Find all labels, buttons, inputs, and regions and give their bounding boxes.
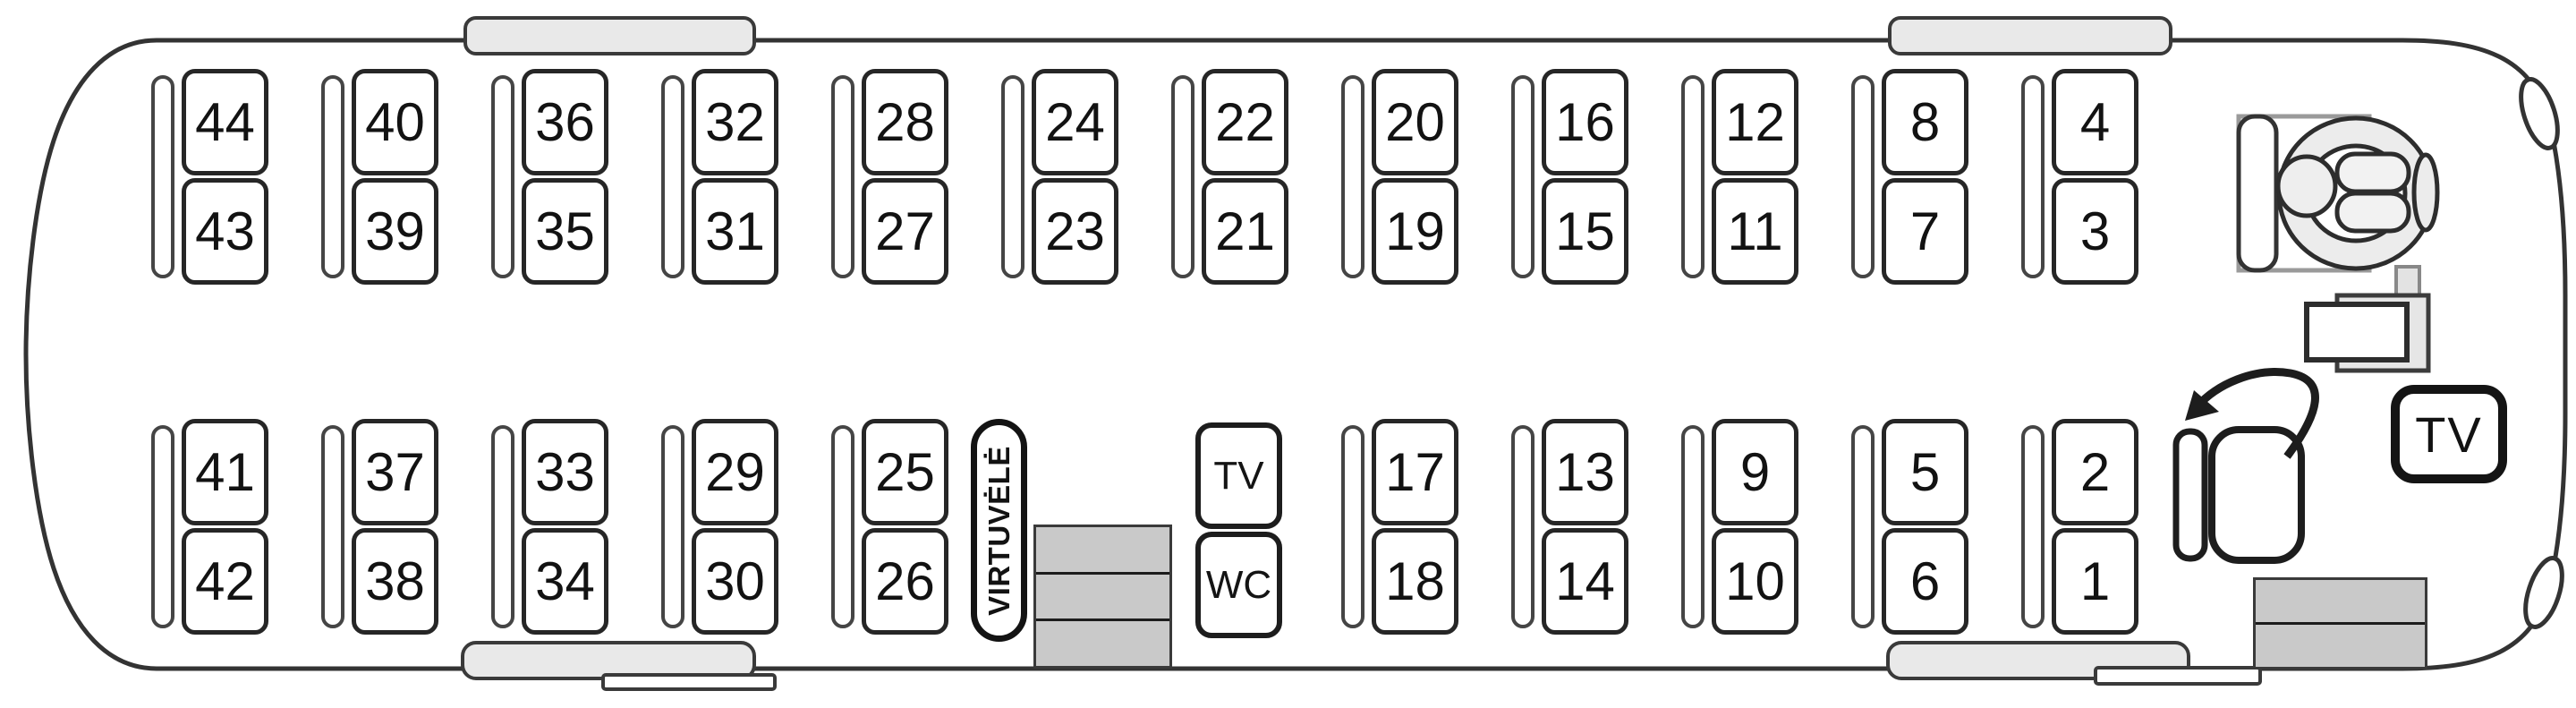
wc-room: WC: [1195, 532, 1282, 638]
seat-9[interactable]: 9: [1712, 419, 1798, 525]
driver-head-icon: [2278, 157, 2335, 216]
seat-pair-20-19: 2019: [1341, 69, 1458, 285]
seat-3[interactable]: 3: [2052, 178, 2138, 285]
middle-door-step: [601, 673, 777, 691]
roof-hatch-front: [1888, 16, 2172, 55]
seat-1[interactable]: 1: [2052, 528, 2138, 635]
seat-pair-4-3: 43: [2021, 69, 2138, 285]
seat-backrest-icon: [491, 425, 514, 628]
seat-2[interactable]: 2: [2052, 419, 2138, 525]
kitchenette: VIRTUVĖLĖ: [971, 419, 1027, 642]
stair-step: [2256, 622, 2425, 667]
seat-pair-25-26: 2526: [831, 419, 948, 635]
bus-floor-plan: VIRTUVĖLĖ TV WC TV 444340393635323128272…: [0, 0, 2576, 708]
seat-43[interactable]: 43: [182, 178, 268, 285]
seat-backrest-icon: [1341, 75, 1365, 278]
seat-backrest-icon: [661, 75, 684, 278]
seat-backrest-icon: [1681, 75, 1705, 278]
stair-step: [2256, 580, 2425, 622]
seat-11[interactable]: 11: [1712, 178, 1798, 285]
seat-32[interactable]: 32: [692, 69, 778, 175]
seat-backrest-icon: [1341, 425, 1365, 628]
kitchenette-label: VIRTUVĖLĖ: [982, 446, 1016, 616]
seat-10[interactable]: 10: [1712, 528, 1798, 635]
seat-pair-28-27: 2827: [831, 69, 948, 285]
seat-pair-37-38: 3738: [321, 419, 438, 635]
seat-pair-41-42: 4142: [151, 419, 268, 635]
seat-pair-9-10: 910: [1681, 419, 1798, 635]
seat-7[interactable]: 7: [1882, 178, 1968, 285]
seat-21[interactable]: 21: [1202, 178, 1288, 285]
seat-36[interactable]: 36: [522, 69, 608, 175]
seat-pair-24-23: 2423: [1001, 69, 1118, 285]
seat-pair-36-35: 3635: [491, 69, 608, 285]
stair-step: [1036, 618, 1169, 666]
seat-29[interactable]: 29: [692, 419, 778, 525]
seat-30[interactable]: 30: [692, 528, 778, 635]
seat-backrest-icon: [831, 75, 854, 278]
seat-25[interactable]: 25: [862, 419, 948, 525]
seat-35[interactable]: 35: [522, 178, 608, 285]
seat-39[interactable]: 39: [352, 178, 438, 285]
seat-44[interactable]: 44: [182, 69, 268, 175]
seat-42[interactable]: 42: [182, 528, 268, 635]
seat-backrest-icon: [1511, 75, 1535, 278]
seat-8[interactable]: 8: [1882, 69, 1968, 175]
seat-pair-12-11: 1211: [1681, 69, 1798, 285]
seat-pair-40-39: 4039: [321, 69, 438, 285]
seat-backrest-icon: [321, 425, 344, 628]
seat-pair-5-6: 56: [1851, 419, 1968, 635]
seat-6[interactable]: 6: [1882, 528, 1968, 635]
seat-pair-32-31: 3231: [661, 69, 778, 285]
seat-34[interactable]: 34: [522, 528, 608, 635]
seat-pair-33-34: 3334: [491, 419, 608, 635]
seat-17[interactable]: 17: [1372, 419, 1458, 525]
seat-backrest-icon: [1851, 75, 1875, 278]
seat-backrest-icon: [831, 425, 854, 628]
rotating-guide-seat-icon: [2176, 430, 2301, 560]
tv-room: TV: [1195, 422, 1282, 529]
seat-backrest-icon: [2021, 425, 2045, 628]
seat-40[interactable]: 40: [352, 69, 438, 175]
steering-wheel-icon: [2278, 118, 2437, 269]
stair-step: [1036, 572, 1169, 619]
front-tv-label: TV: [2415, 405, 2483, 464]
seat-pair-44-43: 4443: [151, 69, 268, 285]
seat-22[interactable]: 22: [1202, 69, 1288, 175]
seat-38[interactable]: 38: [352, 528, 438, 635]
seat-26[interactable]: 26: [862, 528, 948, 635]
seat-pair-17-18: 1718: [1341, 419, 1458, 635]
seat-19[interactable]: 19: [1372, 178, 1458, 285]
seat-pair-2-1: 21: [2021, 419, 2138, 635]
seat-14[interactable]: 14: [1542, 528, 1628, 635]
seat-backrest-icon: [1681, 425, 1705, 628]
seat-5[interactable]: 5: [1882, 419, 1968, 525]
seat-backrest-icon: [321, 75, 344, 278]
tv-room-label: TV: [1213, 454, 1263, 499]
roof-hatch-rear: [463, 16, 756, 55]
front-door-step: [2094, 666, 2262, 686]
seat-15[interactable]: 15: [1542, 178, 1628, 285]
seat-37[interactable]: 37: [352, 419, 438, 525]
middle-stairs: [1033, 525, 1172, 669]
seat-pair-22-21: 2221: [1171, 69, 1288, 285]
seat-4[interactable]: 4: [2052, 69, 2138, 175]
seat-backrest-icon: [1001, 75, 1024, 278]
seat-backrest-icon: [661, 425, 684, 628]
seat-backrest-icon: [491, 75, 514, 278]
seat-pair-8-7: 87: [1851, 69, 1968, 285]
seat-33[interactable]: 33: [522, 419, 608, 525]
front-stairs: [2253, 577, 2427, 670]
seat-backrest-icon: [1851, 425, 1875, 628]
seat-pair-16-15: 1615: [1511, 69, 1628, 285]
seat-31[interactable]: 31: [692, 178, 778, 285]
wc-room-label: WC: [1206, 563, 1271, 608]
seat-27[interactable]: 27: [862, 178, 948, 285]
seat-12[interactable]: 12: [1712, 69, 1798, 175]
seat-41[interactable]: 41: [182, 419, 268, 525]
seat-23[interactable]: 23: [1032, 178, 1118, 285]
seat-20[interactable]: 20: [1372, 69, 1458, 175]
seat-16[interactable]: 16: [1542, 69, 1628, 175]
seat-pair-13-14: 1314: [1511, 419, 1628, 635]
seat-13[interactable]: 13: [1542, 419, 1628, 525]
seat-pair-29-30: 2930: [661, 419, 778, 635]
seat-backrest-icon: [151, 425, 174, 628]
stair-step: [1036, 527, 1169, 572]
seat-backrest-icon: [2021, 75, 2045, 278]
seat-backrest-icon: [1511, 425, 1535, 628]
seat-18[interactable]: 18: [1372, 528, 1458, 635]
seat-backrest-icon: [151, 75, 174, 278]
seat-28[interactable]: 28: [862, 69, 948, 175]
seat-backrest-icon: [1171, 75, 1194, 278]
front-tv: TV: [2391, 385, 2507, 483]
seat-24[interactable]: 24: [1032, 69, 1118, 175]
